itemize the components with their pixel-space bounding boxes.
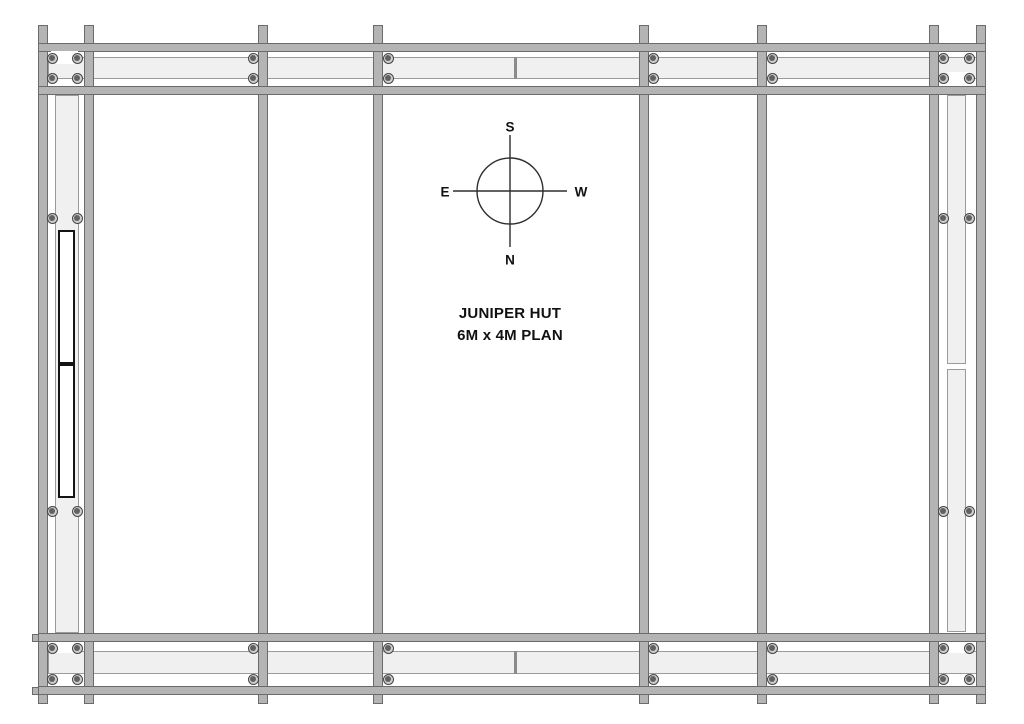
screw-marker-icon xyxy=(767,674,778,685)
infill-panel xyxy=(48,57,977,79)
screw-marker-icon xyxy=(938,73,949,84)
screw-marker-icon xyxy=(964,73,975,84)
screw-marker-icon xyxy=(47,213,58,224)
screw-marker-icon xyxy=(938,506,949,517)
door-frame-detail xyxy=(58,364,75,498)
screw-marker-icon xyxy=(383,643,394,654)
rail-end-nub xyxy=(32,634,39,642)
panel-seam xyxy=(514,57,517,79)
compass-rose-icon xyxy=(0,0,1024,724)
rail-end-nub xyxy=(32,687,39,695)
screw-marker-icon xyxy=(248,643,259,654)
screw-marker-icon xyxy=(767,643,778,654)
compass-label-east-arm: E xyxy=(440,185,449,200)
screw-marker-icon xyxy=(964,506,975,517)
floor-plan-canvas: S N E W JUNIPER HUT 6M x 4M PLAN xyxy=(0,0,1024,724)
plan-title-line2: 6M x 4M PLAN xyxy=(390,325,630,347)
screw-marker-icon xyxy=(72,213,83,224)
door-frame-detail xyxy=(58,230,75,364)
screw-marker-icon xyxy=(47,674,58,685)
screw-marker-icon xyxy=(248,53,259,64)
framing-post xyxy=(929,25,939,704)
screw-marker-icon xyxy=(767,73,778,84)
screw-marker-icon xyxy=(964,674,975,685)
framing-post xyxy=(639,25,649,704)
screw-marker-icon xyxy=(248,674,259,685)
screw-marker-icon xyxy=(648,674,659,685)
framing-post xyxy=(38,25,48,704)
screw-marker-icon xyxy=(47,643,58,654)
framing-rail xyxy=(38,43,986,52)
screw-marker-icon xyxy=(72,73,83,84)
plan-title-block: JUNIPER HUT 6M x 4M PLAN xyxy=(390,303,630,347)
screw-marker-icon xyxy=(938,674,949,685)
framing-rail xyxy=(38,686,986,695)
screw-marker-icon xyxy=(964,213,975,224)
screw-marker-icon xyxy=(767,53,778,64)
screw-marker-icon xyxy=(964,53,975,64)
screw-marker-icon xyxy=(72,643,83,654)
compass-label-north-arm: N xyxy=(505,253,515,268)
screw-marker-icon xyxy=(648,53,659,64)
framing-post xyxy=(976,25,986,704)
framing-rail xyxy=(38,86,986,95)
screw-marker-icon xyxy=(648,73,659,84)
panel-seam xyxy=(514,651,517,674)
screw-marker-icon xyxy=(383,53,394,64)
screw-marker-icon xyxy=(47,73,58,84)
screw-marker-icon xyxy=(47,506,58,517)
framing-post xyxy=(84,25,94,704)
infill-panel xyxy=(947,369,966,632)
screw-marker-icon xyxy=(47,53,58,64)
infill-panel xyxy=(48,651,977,674)
compass-label-west-arm: W xyxy=(575,185,588,200)
screw-marker-icon xyxy=(938,213,949,224)
screw-marker-icon xyxy=(648,643,659,654)
screw-marker-icon xyxy=(938,643,949,654)
screw-marker-icon xyxy=(72,53,83,64)
screw-marker-icon xyxy=(938,53,949,64)
compass-label-south-arm: S xyxy=(505,120,514,135)
framing-rail xyxy=(38,633,986,642)
screw-marker-icon xyxy=(72,506,83,517)
framing-post xyxy=(373,25,383,704)
infill-panel xyxy=(947,95,966,364)
plan-title-line1: JUNIPER HUT xyxy=(390,303,630,325)
framing-post xyxy=(757,25,767,704)
screw-marker-icon xyxy=(383,73,394,84)
screw-marker-icon xyxy=(72,674,83,685)
screw-marker-icon xyxy=(383,674,394,685)
screw-marker-icon xyxy=(248,73,259,84)
screw-marker-icon xyxy=(964,643,975,654)
framing-post xyxy=(258,25,268,704)
